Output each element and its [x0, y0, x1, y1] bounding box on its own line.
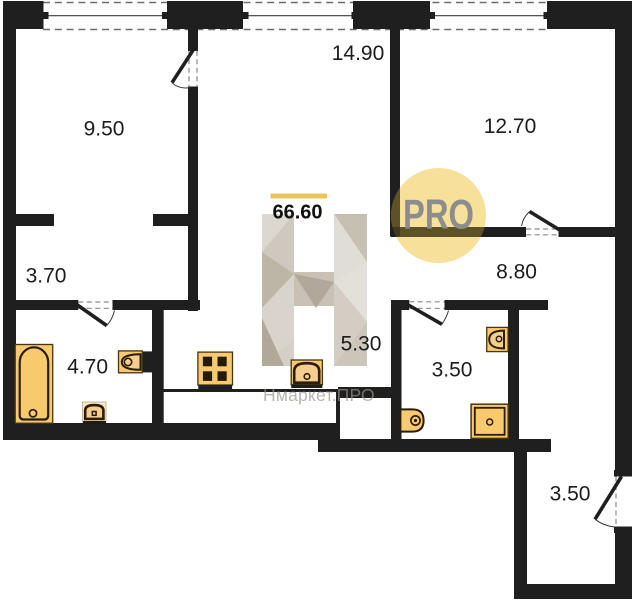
svg-text:3.70: 3.70: [26, 265, 67, 288]
svg-text:PRO: PRO: [403, 191, 474, 238]
svg-text:8.80: 8.80: [496, 261, 537, 284]
svg-text:Нмаркет.ПРО: Нмаркет.ПРО: [263, 385, 375, 405]
svg-text:4.70: 4.70: [67, 356, 108, 379]
svg-text:66.60: 66.60: [272, 202, 322, 224]
svg-text:9.50: 9.50: [84, 118, 125, 141]
svg-text:3.50: 3.50: [432, 359, 473, 382]
svg-text:3.50: 3.50: [550, 483, 591, 506]
svg-text:5.30: 5.30: [341, 333, 382, 356]
svg-text:14.90: 14.90: [332, 42, 385, 65]
svg-text:12.70: 12.70: [484, 115, 537, 138]
